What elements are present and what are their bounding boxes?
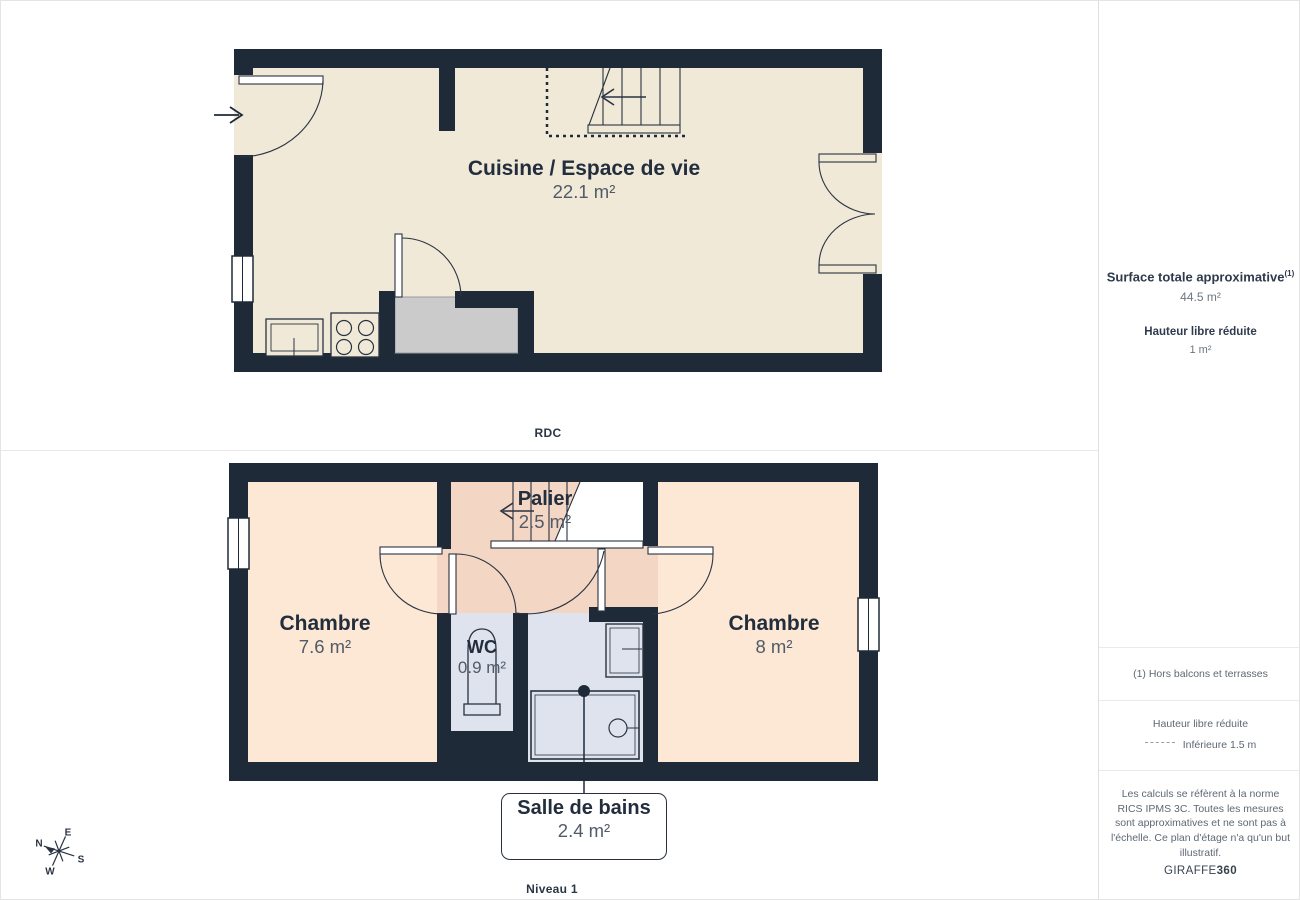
room-area: 8 m²: [728, 636, 819, 658]
legend-title: Hauteur libre réduite: [1099, 718, 1300, 730]
room-name: Salle de bains: [502, 797, 666, 820]
rdc-plan: [214, 49, 882, 372]
sidebar-divider: [1099, 770, 1300, 771]
room-name: Chambre: [279, 612, 370, 636]
compass-west-label: W: [45, 867, 54, 878]
compass-icon: [44, 836, 74, 865]
kitchen-sink: [266, 319, 323, 356]
brand-name-bold: 360: [1217, 865, 1237, 877]
niveau1-caption: Niveau 1: [526, 882, 578, 896]
footnote-text: (1) Hors balcons et terrasses: [1099, 668, 1300, 680]
room-name: Palier: [518, 488, 572, 511]
room-area: 7.6 m²: [279, 636, 370, 658]
salle-de-bains-callout: Salle de bains 2.4 m²: [501, 793, 667, 860]
niveau1-left-window: [228, 518, 249, 569]
compass-east-label: E: [65, 828, 72, 839]
rdc-partition-wall: [439, 68, 455, 131]
reduced-height-dash-icon: [1145, 742, 1175, 744]
plans-area: N E S W Cuisine / Espace de vie 22.1 m² …: [1, 1, 1098, 900]
room-area: 2.4 m²: [502, 820, 666, 842]
rdc-closet: [379, 291, 534, 353]
legend-item-text: Inférieure 1.5 m: [1183, 739, 1257, 751]
compass-north-label: N: [35, 839, 42, 850]
rdc-caption: RDC: [535, 426, 562, 440]
surface-total-footnote-marker: (1): [1284, 269, 1294, 278]
surface-total-title: Surface totale approximative(1): [1099, 269, 1300, 284]
room-area: 22.1 m²: [468, 181, 700, 203]
summary-sidebar: Surface totale approximative(1) 44.5 m² …: [1098, 1, 1300, 900]
cuisine-label: Cuisine / Espace de vie 22.1 m²: [468, 157, 700, 203]
reduced-height-title: Hauteur libre réduite: [1099, 326, 1300, 338]
brand-name-normal: GIRAFFE: [1164, 865, 1217, 877]
surface-total-block: Surface totale approximative(1) 44.5 m² …: [1099, 269, 1300, 356]
niveau1-right-window: [858, 598, 879, 651]
giraffe360-logo: GIRAFFE360: [1099, 865, 1300, 877]
room-area: 2.5 m²: [518, 511, 572, 533]
disclaimer-text: Les calculs se réfèrent à la norme RICS …: [1099, 787, 1300, 860]
floor-plan-page: N E S W Cuisine / Espace de vie 22.1 m² …: [0, 0, 1300, 900]
surface-total-title-text: Surface totale approximative: [1107, 269, 1285, 284]
compass-south-label: S: [78, 855, 85, 866]
room-name: WC: [458, 637, 506, 658]
kitchen-stove: [331, 313, 379, 357]
palier-label: Palier 2.5 m²: [518, 488, 572, 533]
surface-total-value: 44.5 m²: [1099, 290, 1300, 304]
reduced-height-value: 1 m²: [1099, 344, 1300, 356]
room-name: Chambre: [728, 612, 819, 636]
legend-row: Inférieure 1.5 m: [1099, 739, 1300, 751]
room-area: 0.9 m²: [458, 658, 506, 678]
rdc-floor: [253, 68, 863, 353]
room-name: Cuisine / Espace de vie: [468, 157, 700, 181]
sidebar-divider: [1099, 700, 1300, 701]
wc-label: WC 0.9 m²: [458, 637, 506, 678]
chambre-right-label: Chambre 8 m²: [728, 612, 819, 658]
chambre-left-label: Chambre 7.6 m²: [279, 612, 370, 658]
sidebar-divider: [1099, 647, 1300, 648]
rdc-left-window: [232, 256, 253, 302]
floors-divider: [1, 450, 1098, 451]
